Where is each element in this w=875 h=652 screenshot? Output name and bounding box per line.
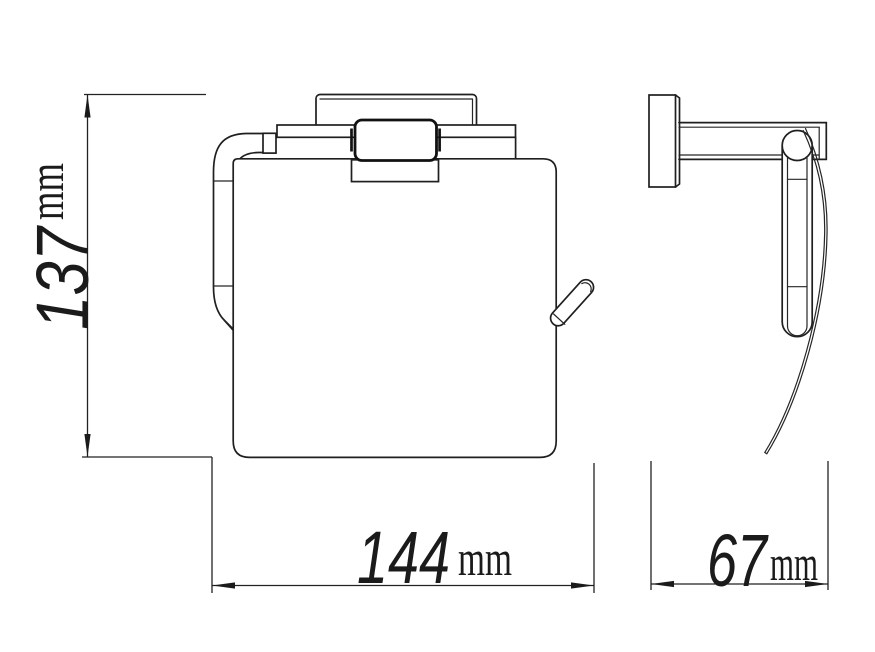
front-view — [214, 95, 594, 458]
cover — [233, 159, 556, 458]
width-dimension: 144 mm — [212, 457, 594, 599]
depth-dimension: 67 mm — [651, 461, 828, 602]
width-dimension-value: 144 — [357, 516, 450, 599]
side-wall-plate — [649, 95, 680, 187]
side-view — [649, 95, 827, 454]
hinge-block — [355, 120, 437, 161]
roll-bar-side — [782, 131, 812, 337]
height-dimension-value: 137 — [21, 225, 104, 330]
width-dimension-unit: mm — [458, 530, 512, 586]
height-dimension: 137 mm — [18, 95, 212, 458]
height-dimension-unit: mm — [18, 163, 74, 220]
hinge-mount — [352, 160, 439, 182]
depth-dimension-value: 67 — [707, 519, 769, 602]
depth-dimension-unit: mm — [770, 535, 818, 591]
technical-drawing-page: 137 mm 144 mm 67 mm — [0, 0, 875, 652]
toilet-paper-holder-drawing: 137 mm 144 mm 67 mm — [0, 0, 875, 652]
cover-flap-curve — [765, 129, 827, 454]
side-arm — [679, 123, 826, 160]
